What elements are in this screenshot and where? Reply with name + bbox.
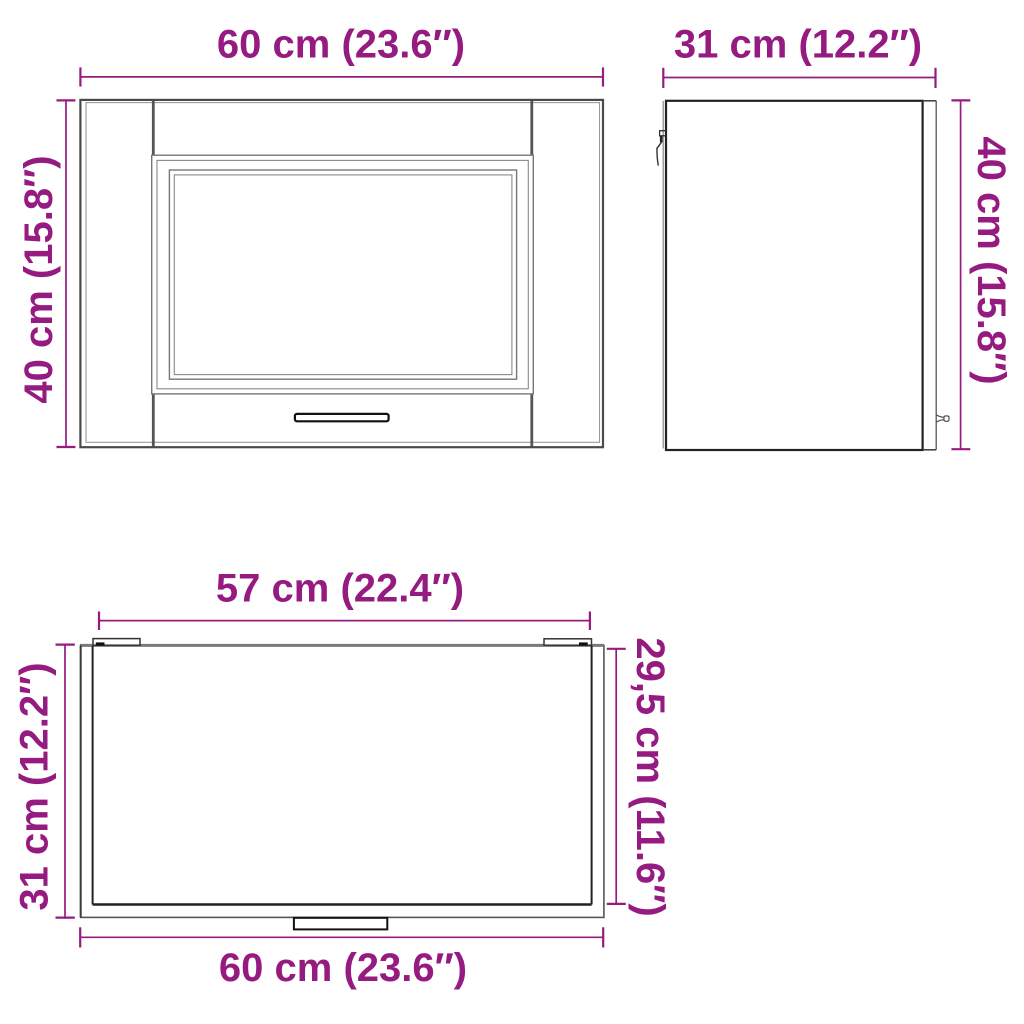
svg-text:40 cm (15.8″): 40 cm (15.8″) <box>969 136 1013 384</box>
svg-text:57 cm (22.4″): 57 cm (22.4″) <box>216 567 464 611</box>
svg-text:31 cm (12.2″): 31 cm (12.2″) <box>13 662 57 910</box>
svg-text:60 cm (23.6″): 60 cm (23.6″) <box>219 946 467 990</box>
svg-text:40 cm (15.8″): 40 cm (15.8″) <box>17 155 61 403</box>
svg-text:29,5 cm (11.6″): 29,5 cm (11.6″) <box>628 637 672 916</box>
svg-text:60 cm (23.6″): 60 cm (23.6″) <box>217 23 465 67</box>
svg-text:31 cm (12.2″): 31 cm (12.2″) <box>674 23 922 67</box>
